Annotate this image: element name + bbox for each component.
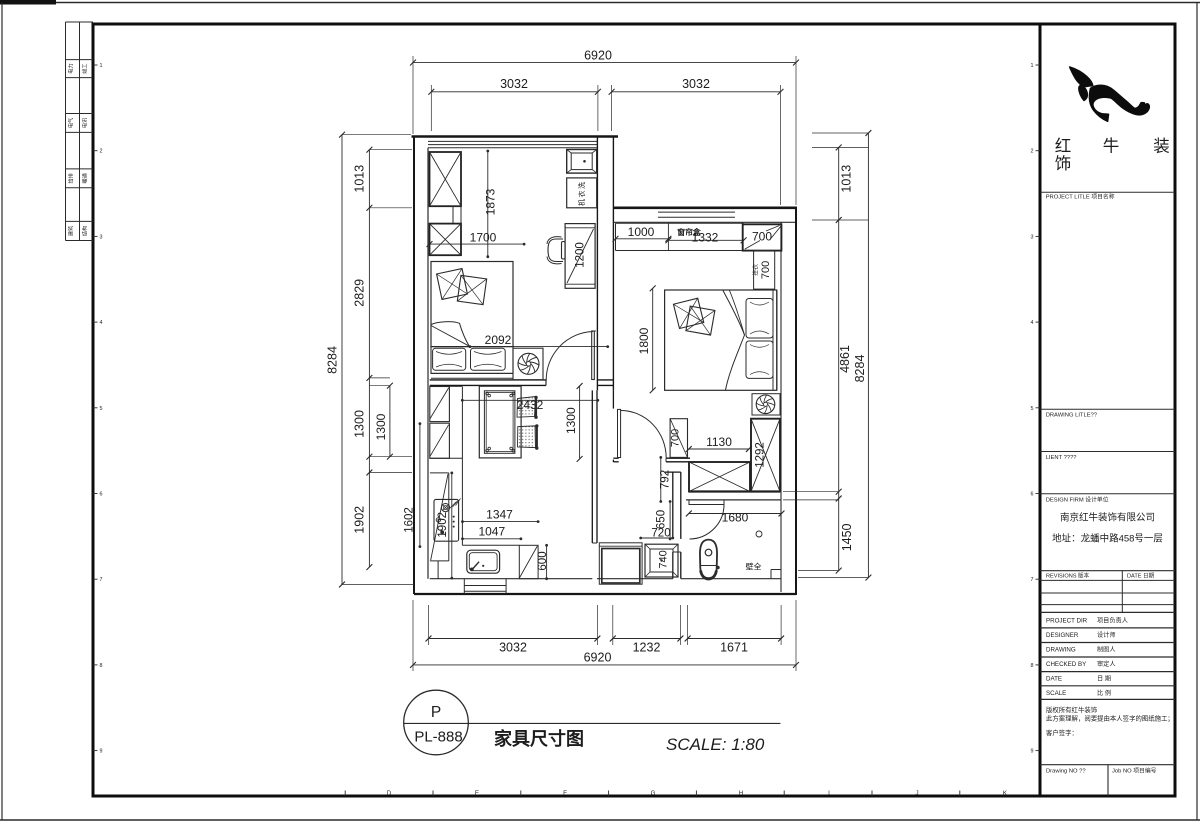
svg-text:项目负责人: 项目负责人 (1097, 617, 1128, 625)
svg-text:1: 1 (100, 63, 103, 69)
svg-text:制图人: 制图人 (1097, 646, 1116, 654)
svg-text:4: 4 (1031, 320, 1034, 326)
svg-text:1671: 1671 (720, 641, 748, 655)
svg-text:电气: 电气 (67, 118, 75, 128)
svg-text:2: 2 (1031, 149, 1034, 155)
svg-text:8284: 8284 (326, 346, 340, 374)
svg-text:电讯: 电讯 (81, 117, 89, 128)
svg-text:1300: 1300 (353, 410, 367, 438)
svg-text:600: 600 (537, 551, 549, 570)
svg-text:PROJECT DIR: PROJECT DIR (1046, 618, 1088, 625)
svg-text:PROJECT LITLE 项目名称: PROJECT LITLE 项目名称 (1046, 193, 1115, 201)
svg-text:1013: 1013 (353, 165, 367, 193)
svg-text:650: 650 (656, 510, 668, 529)
svg-text:客户签字：: 客户签字： (1046, 728, 1078, 737)
svg-text:SCALE: SCALE (1046, 690, 1066, 697)
svg-text:1347: 1347 (486, 508, 513, 522)
svg-text:7: 7 (100, 577, 103, 583)
svg-text:比 例: 比 例 (1097, 689, 1111, 697)
svg-text:1450: 1450 (840, 523, 854, 551)
svg-text:2: 2 (100, 149, 103, 155)
svg-text:建筑: 建筑 (67, 225, 75, 236)
svg-text:暖通: 暖通 (81, 172, 89, 183)
svg-text:家具尺寸图: 家具尺寸图 (494, 728, 584, 749)
svg-text:南京红牛装饰有限公司: 南京红牛装饰有限公司 (1060, 512, 1155, 524)
svg-text:设计师: 设计师 (1097, 631, 1116, 639)
svg-text:审定人: 审定人 (1097, 660, 1116, 668)
svg-text:J: J (915, 790, 918, 797)
svg-text:D: D (387, 790, 392, 797)
svg-text:H: H (739, 790, 743, 797)
svg-text:5: 5 (1031, 406, 1034, 412)
svg-text:3: 3 (1031, 234, 1034, 240)
svg-text:720: 720 (651, 528, 670, 540)
svg-text:5: 5 (100, 406, 103, 412)
svg-text:1300: 1300 (374, 413, 388, 440)
svg-text:饰: 饰 (1055, 154, 1072, 173)
svg-text:1300: 1300 (564, 407, 578, 434)
svg-text:给排: 给排 (67, 173, 75, 183)
svg-text:1047: 1047 (478, 525, 505, 539)
svg-text:衣: 衣 (577, 191, 586, 198)
svg-text:DATE 日期: DATE 日期 (1127, 573, 1155, 580)
svg-text:挂衣: 挂衣 (752, 264, 760, 276)
svg-text:1: 1 (1031, 63, 1034, 69)
svg-text:机: 机 (577, 199, 586, 206)
svg-text:1292: 1292 (755, 442, 767, 468)
svg-text:1000: 1000 (628, 225, 655, 239)
svg-text:结构: 结构 (81, 226, 89, 236)
svg-text:1800: 1800 (637, 327, 651, 354)
svg-text:I: I (828, 790, 830, 797)
svg-text:792: 792 (660, 470, 672, 489)
svg-text:9: 9 (1031, 749, 1034, 755)
svg-text:4: 4 (100, 320, 103, 326)
svg-text:版权所有红牛装饰: 版权所有红牛装饰 (1046, 705, 1098, 714)
svg-text:竣工: 竣工 (81, 63, 89, 73)
svg-text:7: 7 (1031, 577, 1034, 583)
svg-text:1873: 1873 (484, 188, 498, 215)
svg-text:1130: 1130 (706, 435, 732, 449)
svg-text:3032: 3032 (682, 77, 710, 91)
svg-text:9: 9 (100, 749, 103, 755)
svg-text:2092: 2092 (485, 333, 512, 347)
svg-text:DRAWING LITLE??: DRAWING LITLE?? (1046, 413, 1098, 419)
svg-text:1602: 1602 (404, 507, 416, 533)
svg-text:此方案理解，阅要提由本人签字的图纸施工；: 此方案理解，阅要提由本人签字的图纸施工； (1046, 714, 1174, 723)
svg-text:1232: 1232 (633, 641, 661, 655)
svg-text:6: 6 (100, 492, 103, 498)
svg-text:洗: 洗 (577, 182, 586, 189)
svg-text:G: G (651, 790, 656, 797)
svg-text:1700: 1700 (470, 231, 497, 245)
svg-text:SCALE: 1:80: SCALE: 1:80 (666, 735, 765, 754)
svg-text:CHECKED BY: CHECKED BY (1046, 661, 1086, 668)
svg-text:Drawing NO ??: Drawing NO ?? (1046, 769, 1086, 775)
svg-text:壁全: 壁全 (746, 562, 762, 572)
svg-text:3: 3 (100, 234, 103, 240)
svg-text:Job NO 项目编号: Job NO 项目编号 (1112, 767, 1157, 775)
svg-text:740: 740 (658, 550, 670, 568)
svg-text:F: F (563, 790, 567, 797)
svg-text:日 期: 日 期 (1097, 675, 1111, 683)
svg-text:E: E (475, 790, 479, 797)
svg-text:电力: 电力 (67, 63, 75, 73)
svg-text:3032: 3032 (500, 77, 528, 91)
svg-text:P: P (431, 704, 441, 721)
svg-text:6920: 6920 (584, 49, 612, 63)
svg-text:地址：龙蟠中路458号一层: 地址：龙蟠中路458号一层 (1052, 533, 1163, 545)
svg-text:1680: 1680 (722, 511, 749, 525)
svg-text:1013: 1013 (840, 165, 854, 193)
svg-text:6920: 6920 (584, 651, 612, 665)
svg-text:3032: 3032 (499, 641, 527, 655)
svg-text:2829: 2829 (353, 279, 367, 307)
svg-text:DESIGN FIRM 设计单位: DESIGN FIRM 设计单位 (1046, 495, 1109, 503)
svg-text:LIENT ????: LIENT ???? (1046, 455, 1078, 461)
svg-text:窗帘盒: 窗帘盒 (677, 227, 701, 237)
svg-text:4861: 4861 (838, 345, 852, 373)
svg-text:8: 8 (100, 663, 103, 669)
svg-text:700: 700 (752, 230, 772, 244)
svg-text:700: 700 (760, 261, 772, 279)
svg-text:红: 红 (1055, 137, 1072, 156)
svg-text:8284: 8284 (853, 355, 867, 383)
svg-text:1200: 1200 (575, 242, 587, 268)
svg-text:牛: 牛 (1103, 137, 1120, 156)
svg-text:6: 6 (1031, 492, 1034, 498)
svg-text:REVISIONS 版本: REVISIONS 版本 (1046, 572, 1090, 580)
svg-text:DATE: DATE (1046, 676, 1062, 683)
svg-text:装: 装 (1153, 137, 1170, 156)
svg-text:DRAWING: DRAWING (1046, 647, 1076, 654)
svg-text:PL-888: PL-888 (414, 729, 462, 746)
svg-text:1902: 1902 (353, 506, 367, 534)
svg-text:DESIGNER: DESIGNER (1046, 632, 1079, 639)
svg-text:8: 8 (1031, 663, 1034, 669)
